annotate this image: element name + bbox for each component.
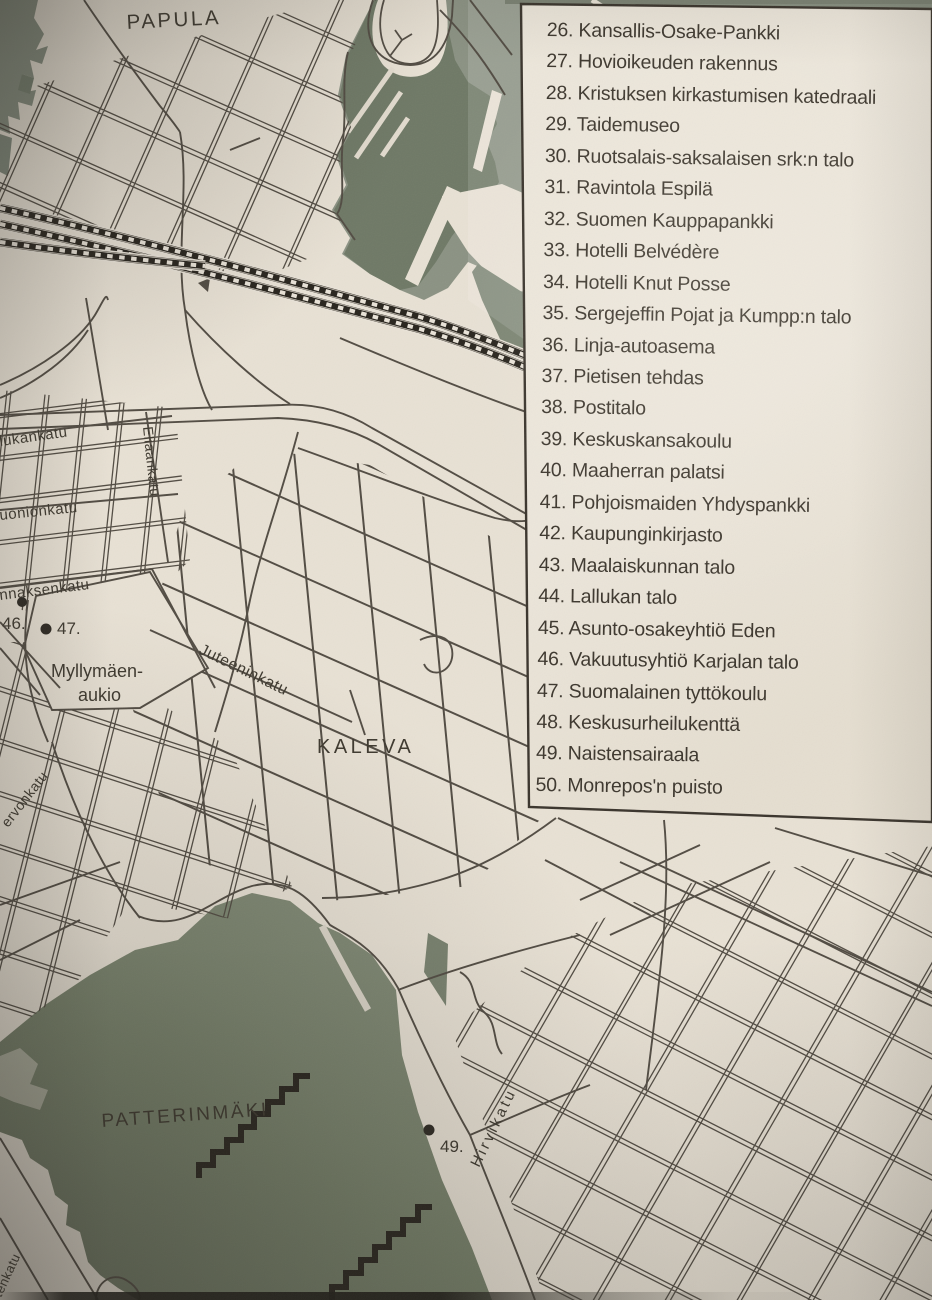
svg-text:49.: 49. xyxy=(440,1137,464,1156)
svg-text:Myllymäen-: Myllymäen- xyxy=(51,661,143,681)
svg-text:aukio: aukio xyxy=(78,685,121,705)
svg-text:47.: 47. xyxy=(57,619,81,638)
svg-text:46.: 46. xyxy=(2,614,26,633)
svg-text:KALEVA: KALEVA xyxy=(317,736,414,758)
